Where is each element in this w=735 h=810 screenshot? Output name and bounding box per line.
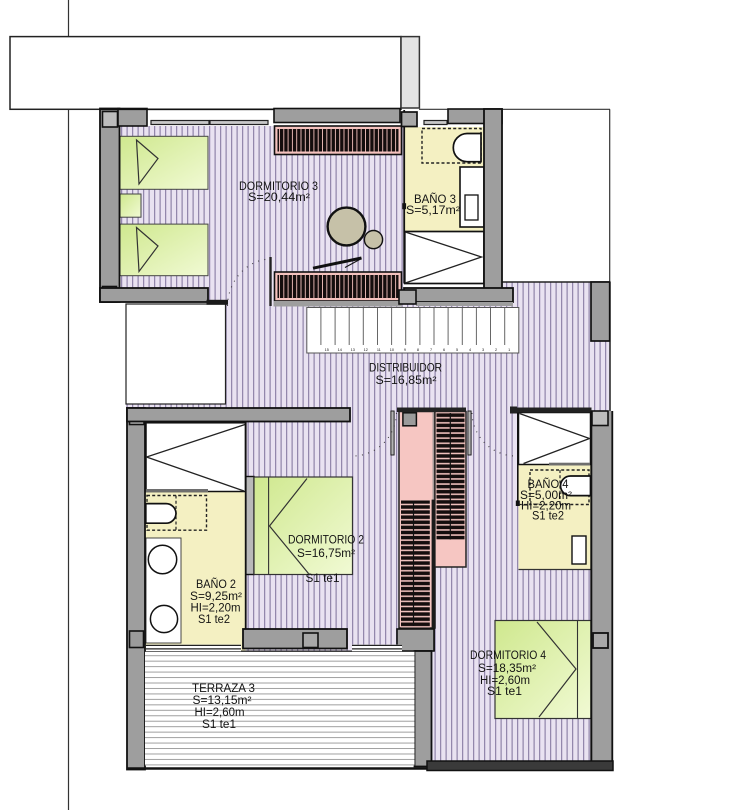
svg-text:15: 15 (325, 348, 329, 352)
svg-text:14: 14 (338, 348, 342, 352)
svg-text:S=20,44m²: S=20,44m² (248, 192, 310, 204)
svg-text:4: 4 (469, 348, 471, 352)
svg-text:S=9,25m²: S=9,25m² (190, 591, 242, 603)
svg-text:DISTRIBUIDOR: DISTRIBUIDOR (369, 363, 442, 375)
svg-text:S1 te1: S1 te1 (487, 686, 522, 698)
svg-text:12: 12 (364, 348, 368, 352)
svg-text:S=16,85m²: S=16,85m² (376, 375, 437, 387)
svg-text:DORMITORIO 4: DORMITORIO 4 (470, 650, 547, 662)
svg-text:S=16,75m²: S=16,75m² (297, 548, 355, 560)
svg-text:S=5,17m²: S=5,17m² (406, 205, 460, 217)
svg-text:5: 5 (456, 348, 458, 352)
svg-text:HI=2,20m: HI=2,20m (191, 603, 241, 615)
svg-text:DORMITORIO 2: DORMITORIO 2 (288, 535, 364, 547)
svg-text:9: 9 (404, 348, 406, 352)
svg-text:2: 2 (495, 348, 497, 352)
svg-text:S1 te1: S1 te1 (306, 573, 340, 585)
svg-text:8: 8 (417, 348, 419, 352)
svg-text:10: 10 (390, 348, 394, 352)
svg-text:1: 1 (508, 348, 510, 352)
svg-text:S1 te2: S1 te2 (198, 614, 230, 626)
svg-text:BAÑO 2: BAÑO 2 (196, 578, 236, 591)
svg-text:S1 te1: S1 te1 (202, 719, 236, 731)
svg-text:6: 6 (443, 348, 445, 352)
svg-text:TERRAZA 3: TERRAZA 3 (192, 683, 255, 695)
svg-text:S=18,35m²: S=18,35m² (478, 663, 536, 675)
svg-text:HI=2,60m: HI=2,60m (195, 707, 245, 719)
svg-text:3: 3 (482, 348, 484, 352)
svg-text:11: 11 (377, 348, 381, 352)
svg-text:S1 te2: S1 te2 (532, 511, 564, 523)
svg-text:13: 13 (351, 348, 355, 352)
svg-text:S=13,15m²: S=13,15m² (193, 695, 252, 707)
svg-text:7: 7 (430, 348, 432, 352)
